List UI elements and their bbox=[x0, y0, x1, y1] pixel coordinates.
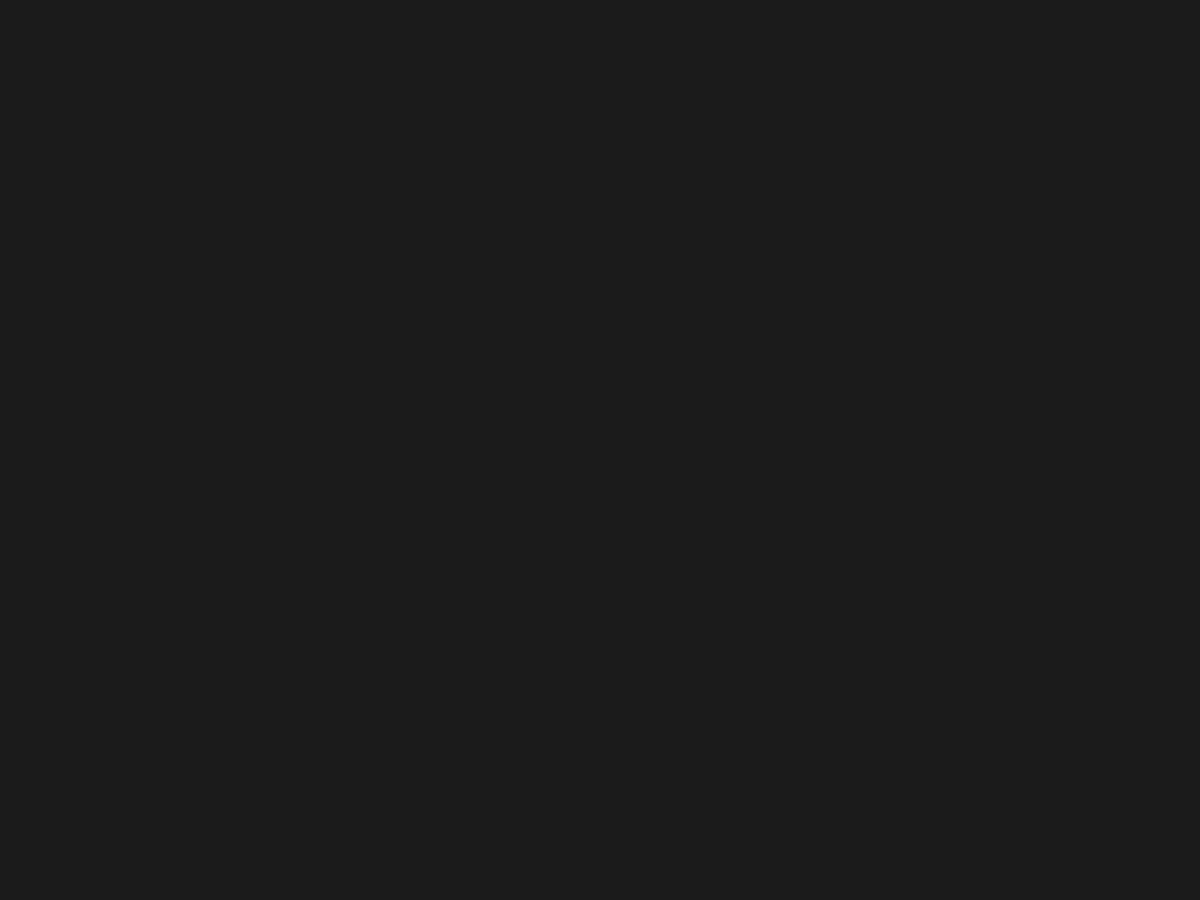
model-scene bbox=[0, 0, 1200, 900]
museum-city-model-photo bbox=[0, 0, 1200, 900]
